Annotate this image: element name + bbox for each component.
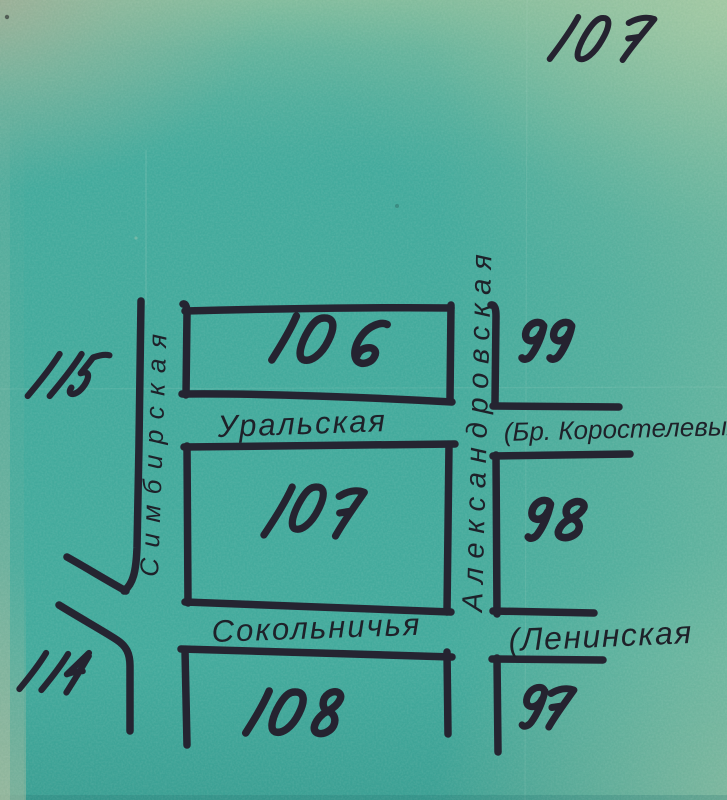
svg-text:Уральская: Уральская xyxy=(216,403,387,444)
svg-text:(Бр. Коростелевых: (Бр. Коростелевых xyxy=(503,411,727,447)
svg-text:Сокольничья: Сокольничья xyxy=(211,607,422,649)
